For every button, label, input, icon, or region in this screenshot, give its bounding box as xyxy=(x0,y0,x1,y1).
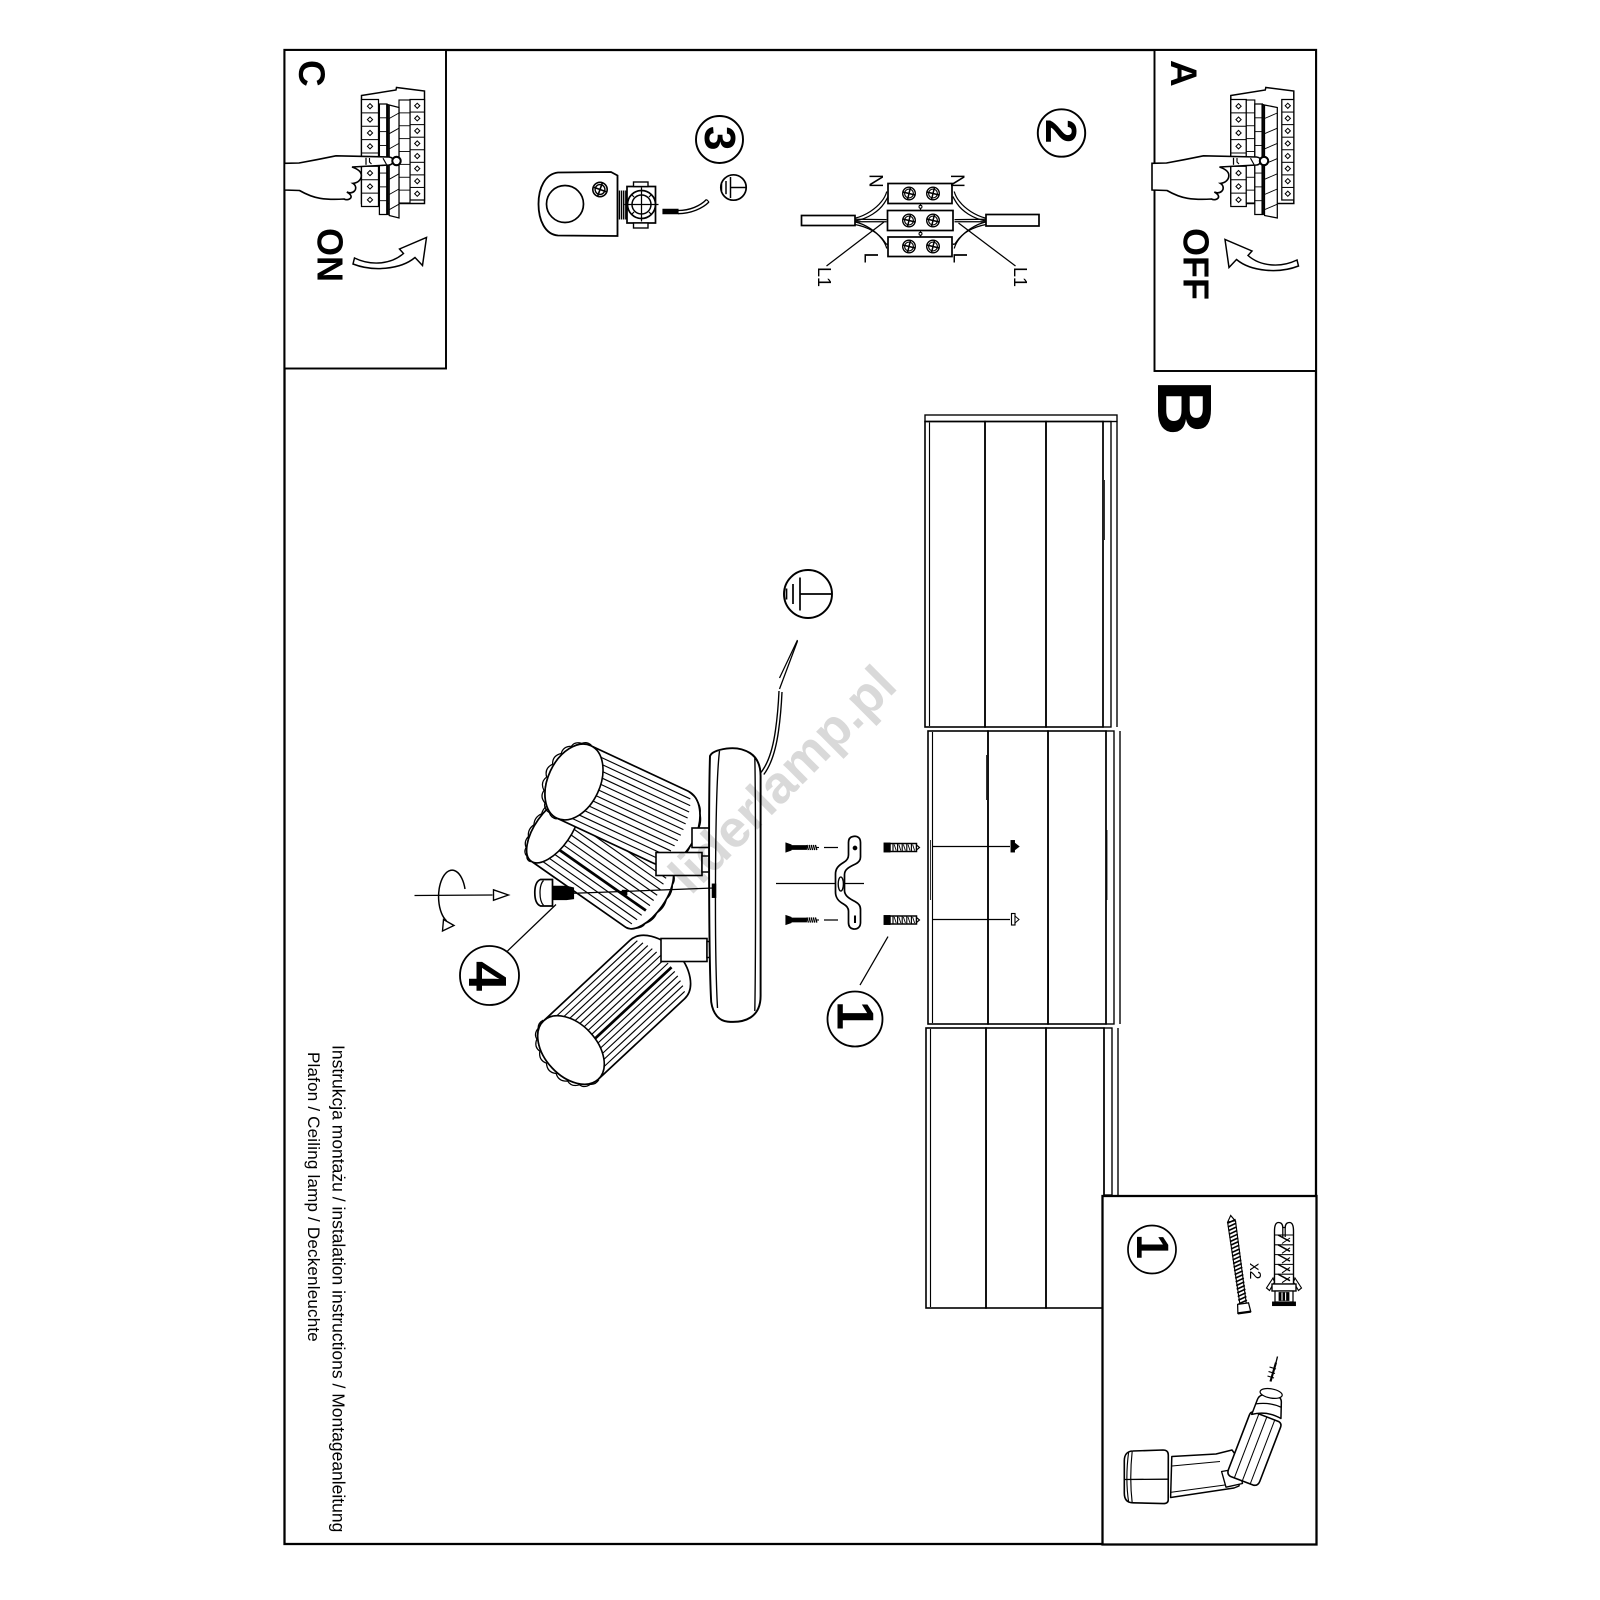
svg-text:1: 1 xyxy=(826,1001,884,1030)
svg-text:ON: ON xyxy=(310,228,351,282)
svg-text:L: L xyxy=(860,253,881,264)
svg-text:Instrukcja montażu / instalati: Instrukcja montażu / instalation instruc… xyxy=(329,1045,349,1532)
svg-text:OFF: OFF xyxy=(1176,228,1217,300)
svg-text:Plafon / Ceiling lamp / Decken: Plafon / Ceiling lamp / Deckenleuchte xyxy=(304,1052,323,1342)
svg-text:L: L xyxy=(949,253,970,264)
svg-text:2: 2 xyxy=(1036,119,1085,143)
svg-text:B: B xyxy=(1141,380,1227,436)
svg-text:1: 1 xyxy=(1127,1234,1178,1259)
svg-text:C: C xyxy=(291,60,332,87)
svg-text:N: N xyxy=(946,174,967,188)
svg-text:L1: L1 xyxy=(1010,267,1030,287)
svg-text:3: 3 xyxy=(695,126,744,150)
svg-text:N: N xyxy=(865,174,886,188)
svg-text:L1: L1 xyxy=(814,267,834,287)
svg-text:x2: x2 xyxy=(1246,1263,1263,1279)
svg-text:A: A xyxy=(1163,60,1204,87)
svg-text:4: 4 xyxy=(457,961,517,991)
